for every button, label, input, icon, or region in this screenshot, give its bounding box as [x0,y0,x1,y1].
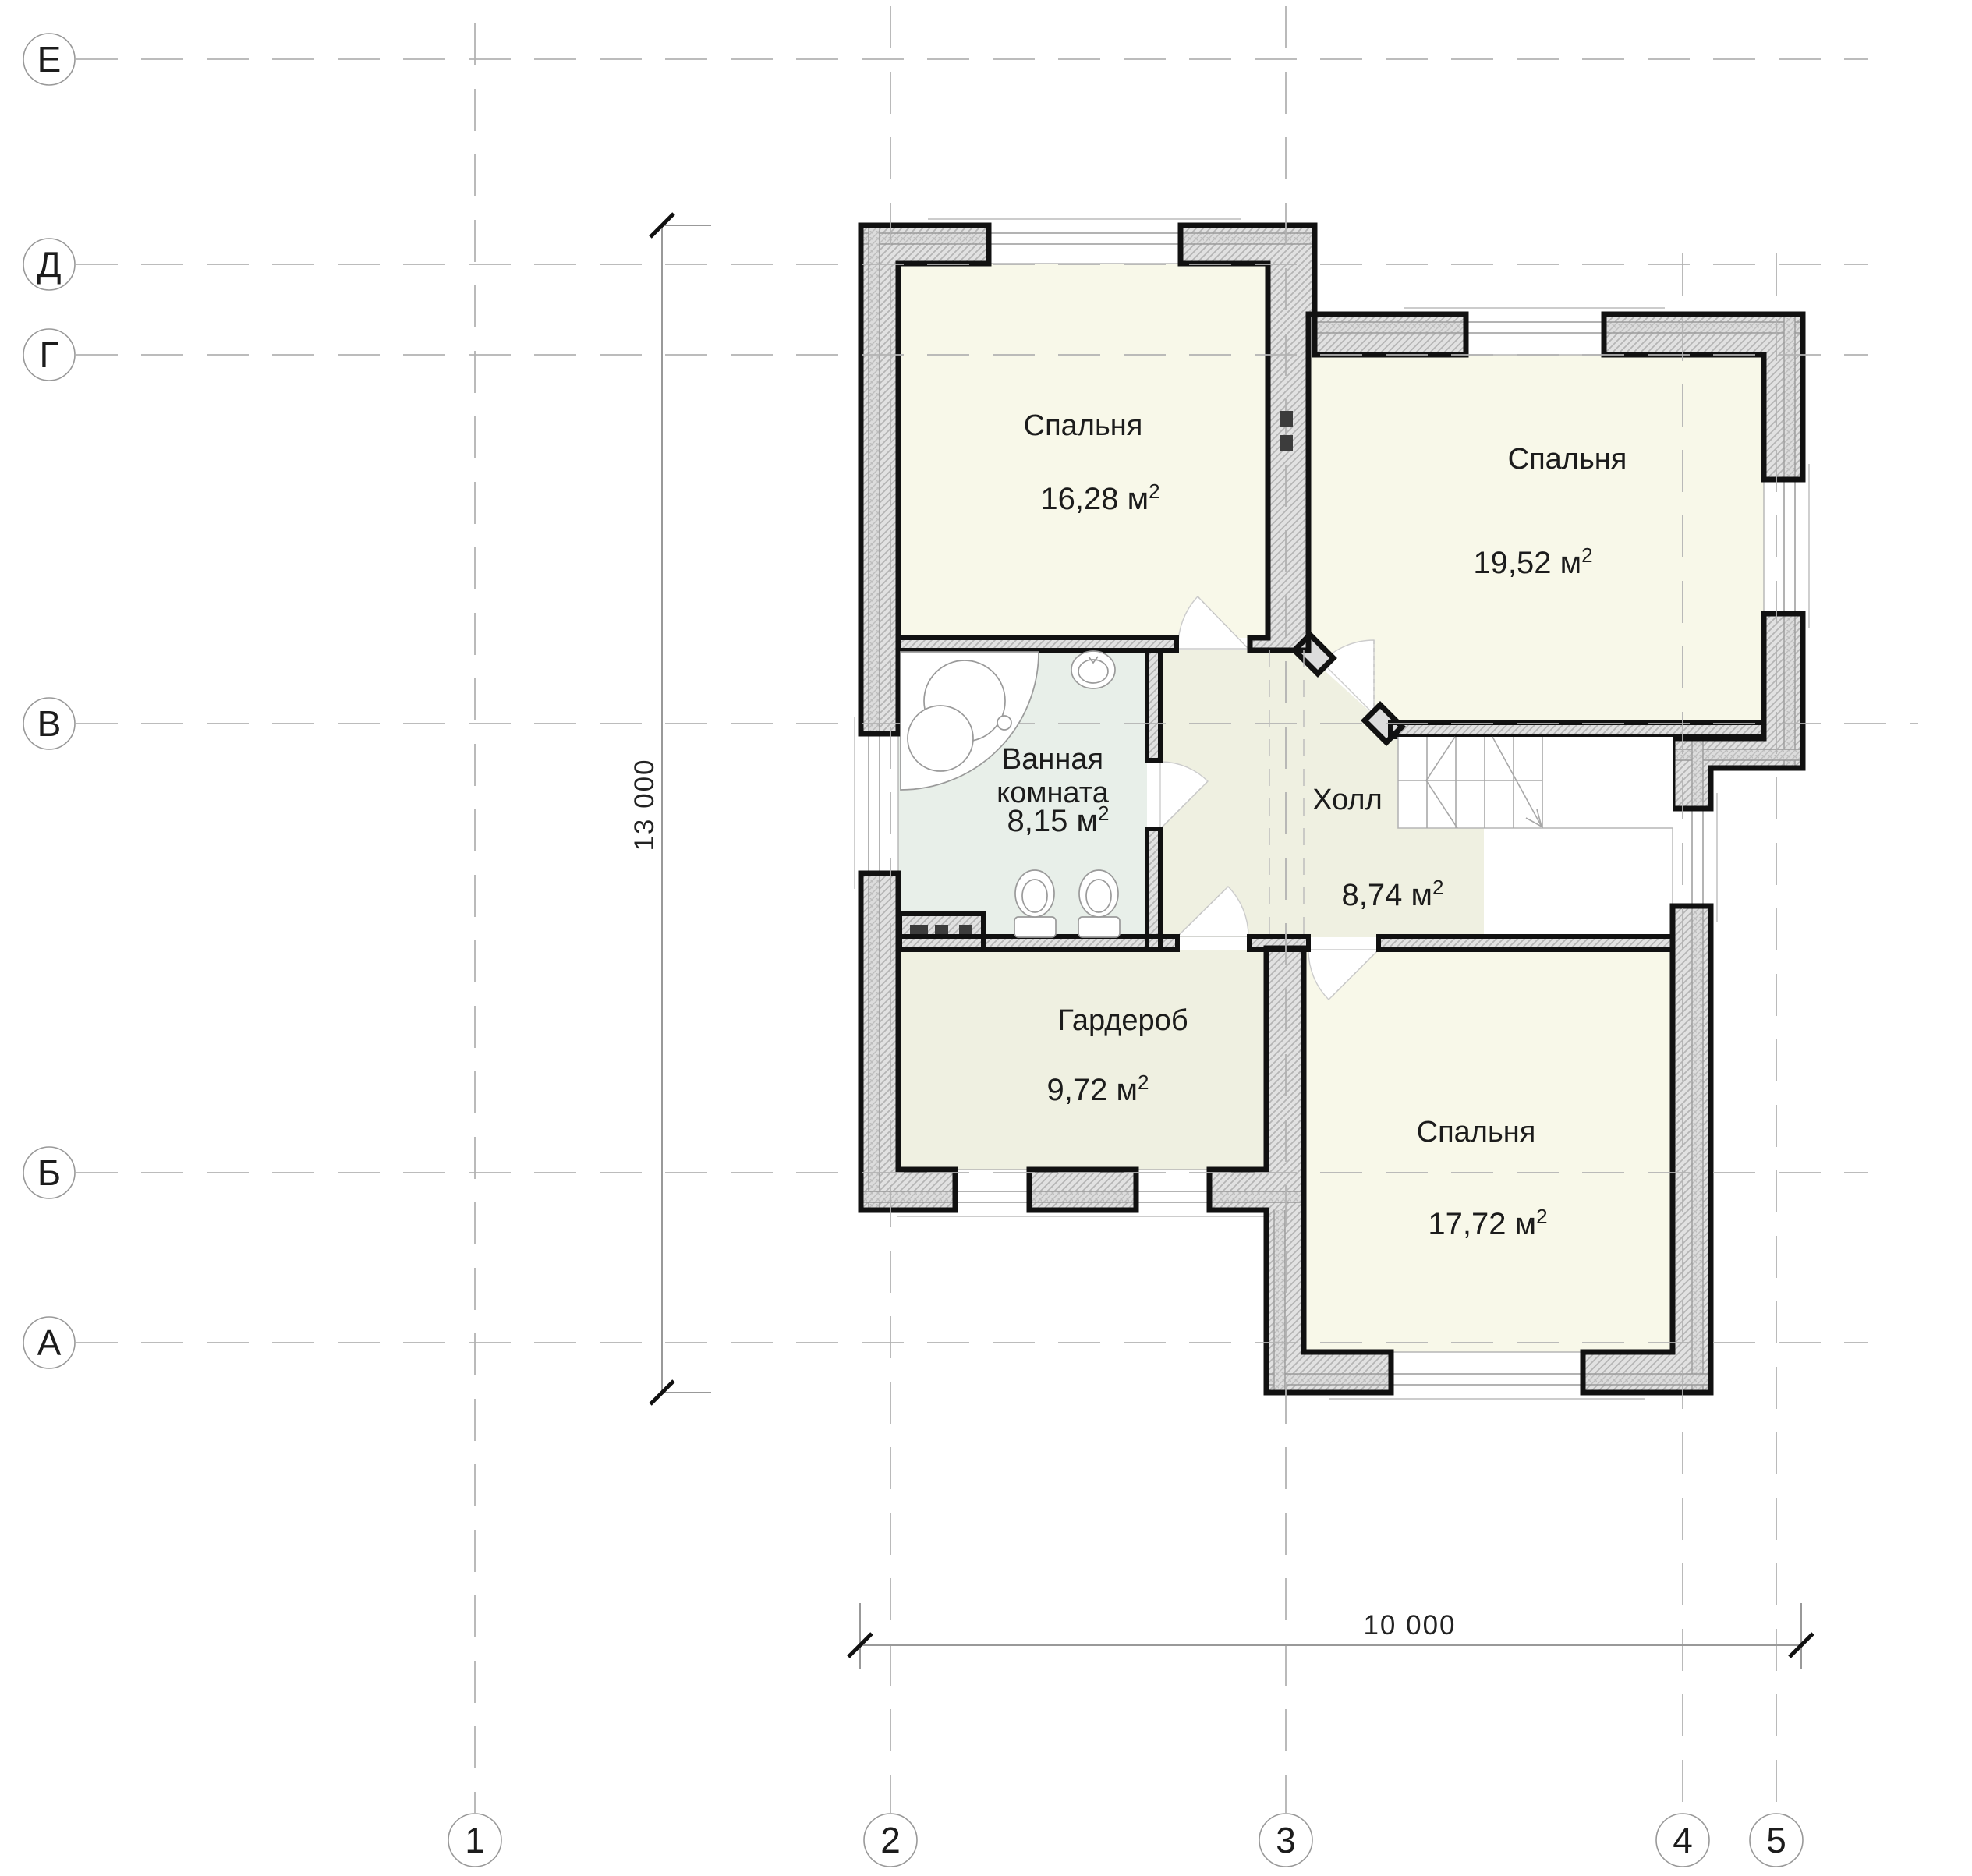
svg-text:Б: Б [37,1152,61,1193]
svg-text:Спальня: Спальня [1417,1116,1536,1149]
svg-text:5: 5 [1766,1820,1786,1860]
svg-text:4: 4 [1673,1820,1693,1860]
svg-text:Спальня: Спальня [1508,443,1627,476]
svg-text:Гардероб: Гардероб [1057,1004,1188,1037]
svg-text:В: В [37,703,62,744]
svg-text:17,72 м2: 17,72 м2 [1428,1205,1547,1241]
svg-text:8,15 м2: 8,15 м2 [1007,802,1110,838]
svg-text:3: 3 [1276,1820,1296,1860]
svg-text:Д: Д [37,244,61,285]
svg-text:Ванная: Ванная [1002,743,1103,776]
svg-text:Г: Г [40,334,59,375]
svg-text:8,74 м2: 8,74 м2 [1342,876,1444,912]
svg-text:А: А [37,1322,62,1363]
svg-text:Е: Е [37,39,62,80]
svg-text:19,52 м2: 19,52 м2 [1473,543,1592,580]
svg-text:9,72 м2: 9,72 м2 [1047,1071,1149,1107]
svg-text:10 000: 10 000 [1363,1610,1456,1641]
svg-text:Спальня: Спальня [1024,409,1143,442]
svg-text:2: 2 [880,1820,901,1860]
svg-text:Холл: Холл [1312,784,1383,816]
svg-text:13 000: 13 000 [629,758,660,851]
svg-text:1: 1 [465,1820,485,1860]
svg-text:16,28 м2: 16,28 м2 [1040,480,1159,516]
